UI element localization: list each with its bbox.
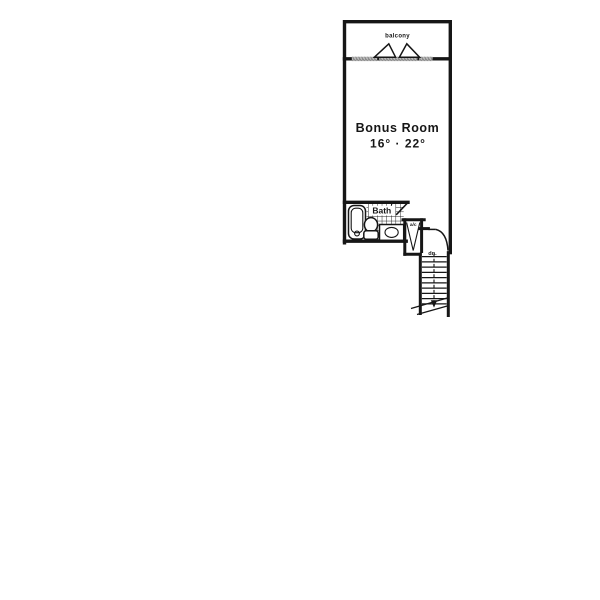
landing-door-swing-icon — [428, 229, 448, 250]
stairs-down-label: dn. — [428, 251, 437, 257]
bath-label: Bath — [372, 206, 391, 216]
floor-plan-page: balcony Bonus Room 16° · 22° Bath a/c — [0, 0, 600, 600]
bonus-room-label: Bonus Room — [356, 121, 440, 135]
bonus-room-area: Bonus Room 16° · 22° — [356, 121, 440, 151]
toilet-tank-icon — [364, 231, 378, 239]
closet-label: a/c — [410, 222, 417, 228]
window-sill-right — [419, 57, 433, 61]
french-door-swing-left-icon — [374, 44, 395, 57]
utility-closet-area: a/c — [407, 222, 420, 250]
bonus-room-dimensions: 16° · 22° — [370, 137, 426, 151]
french-door-swing-right-icon — [399, 44, 419, 57]
floor-plan-drawing: balcony Bonus Room 16° · 22° Bath a/c — [0, 0, 600, 600]
staircase: dn. — [411, 251, 449, 315]
bathroom-area: Bath — [349, 203, 408, 240]
balcony-area: balcony — [352, 34, 433, 62]
balcony-label: balcony — [385, 34, 410, 40]
toilet-bowl-icon — [364, 218, 377, 232]
